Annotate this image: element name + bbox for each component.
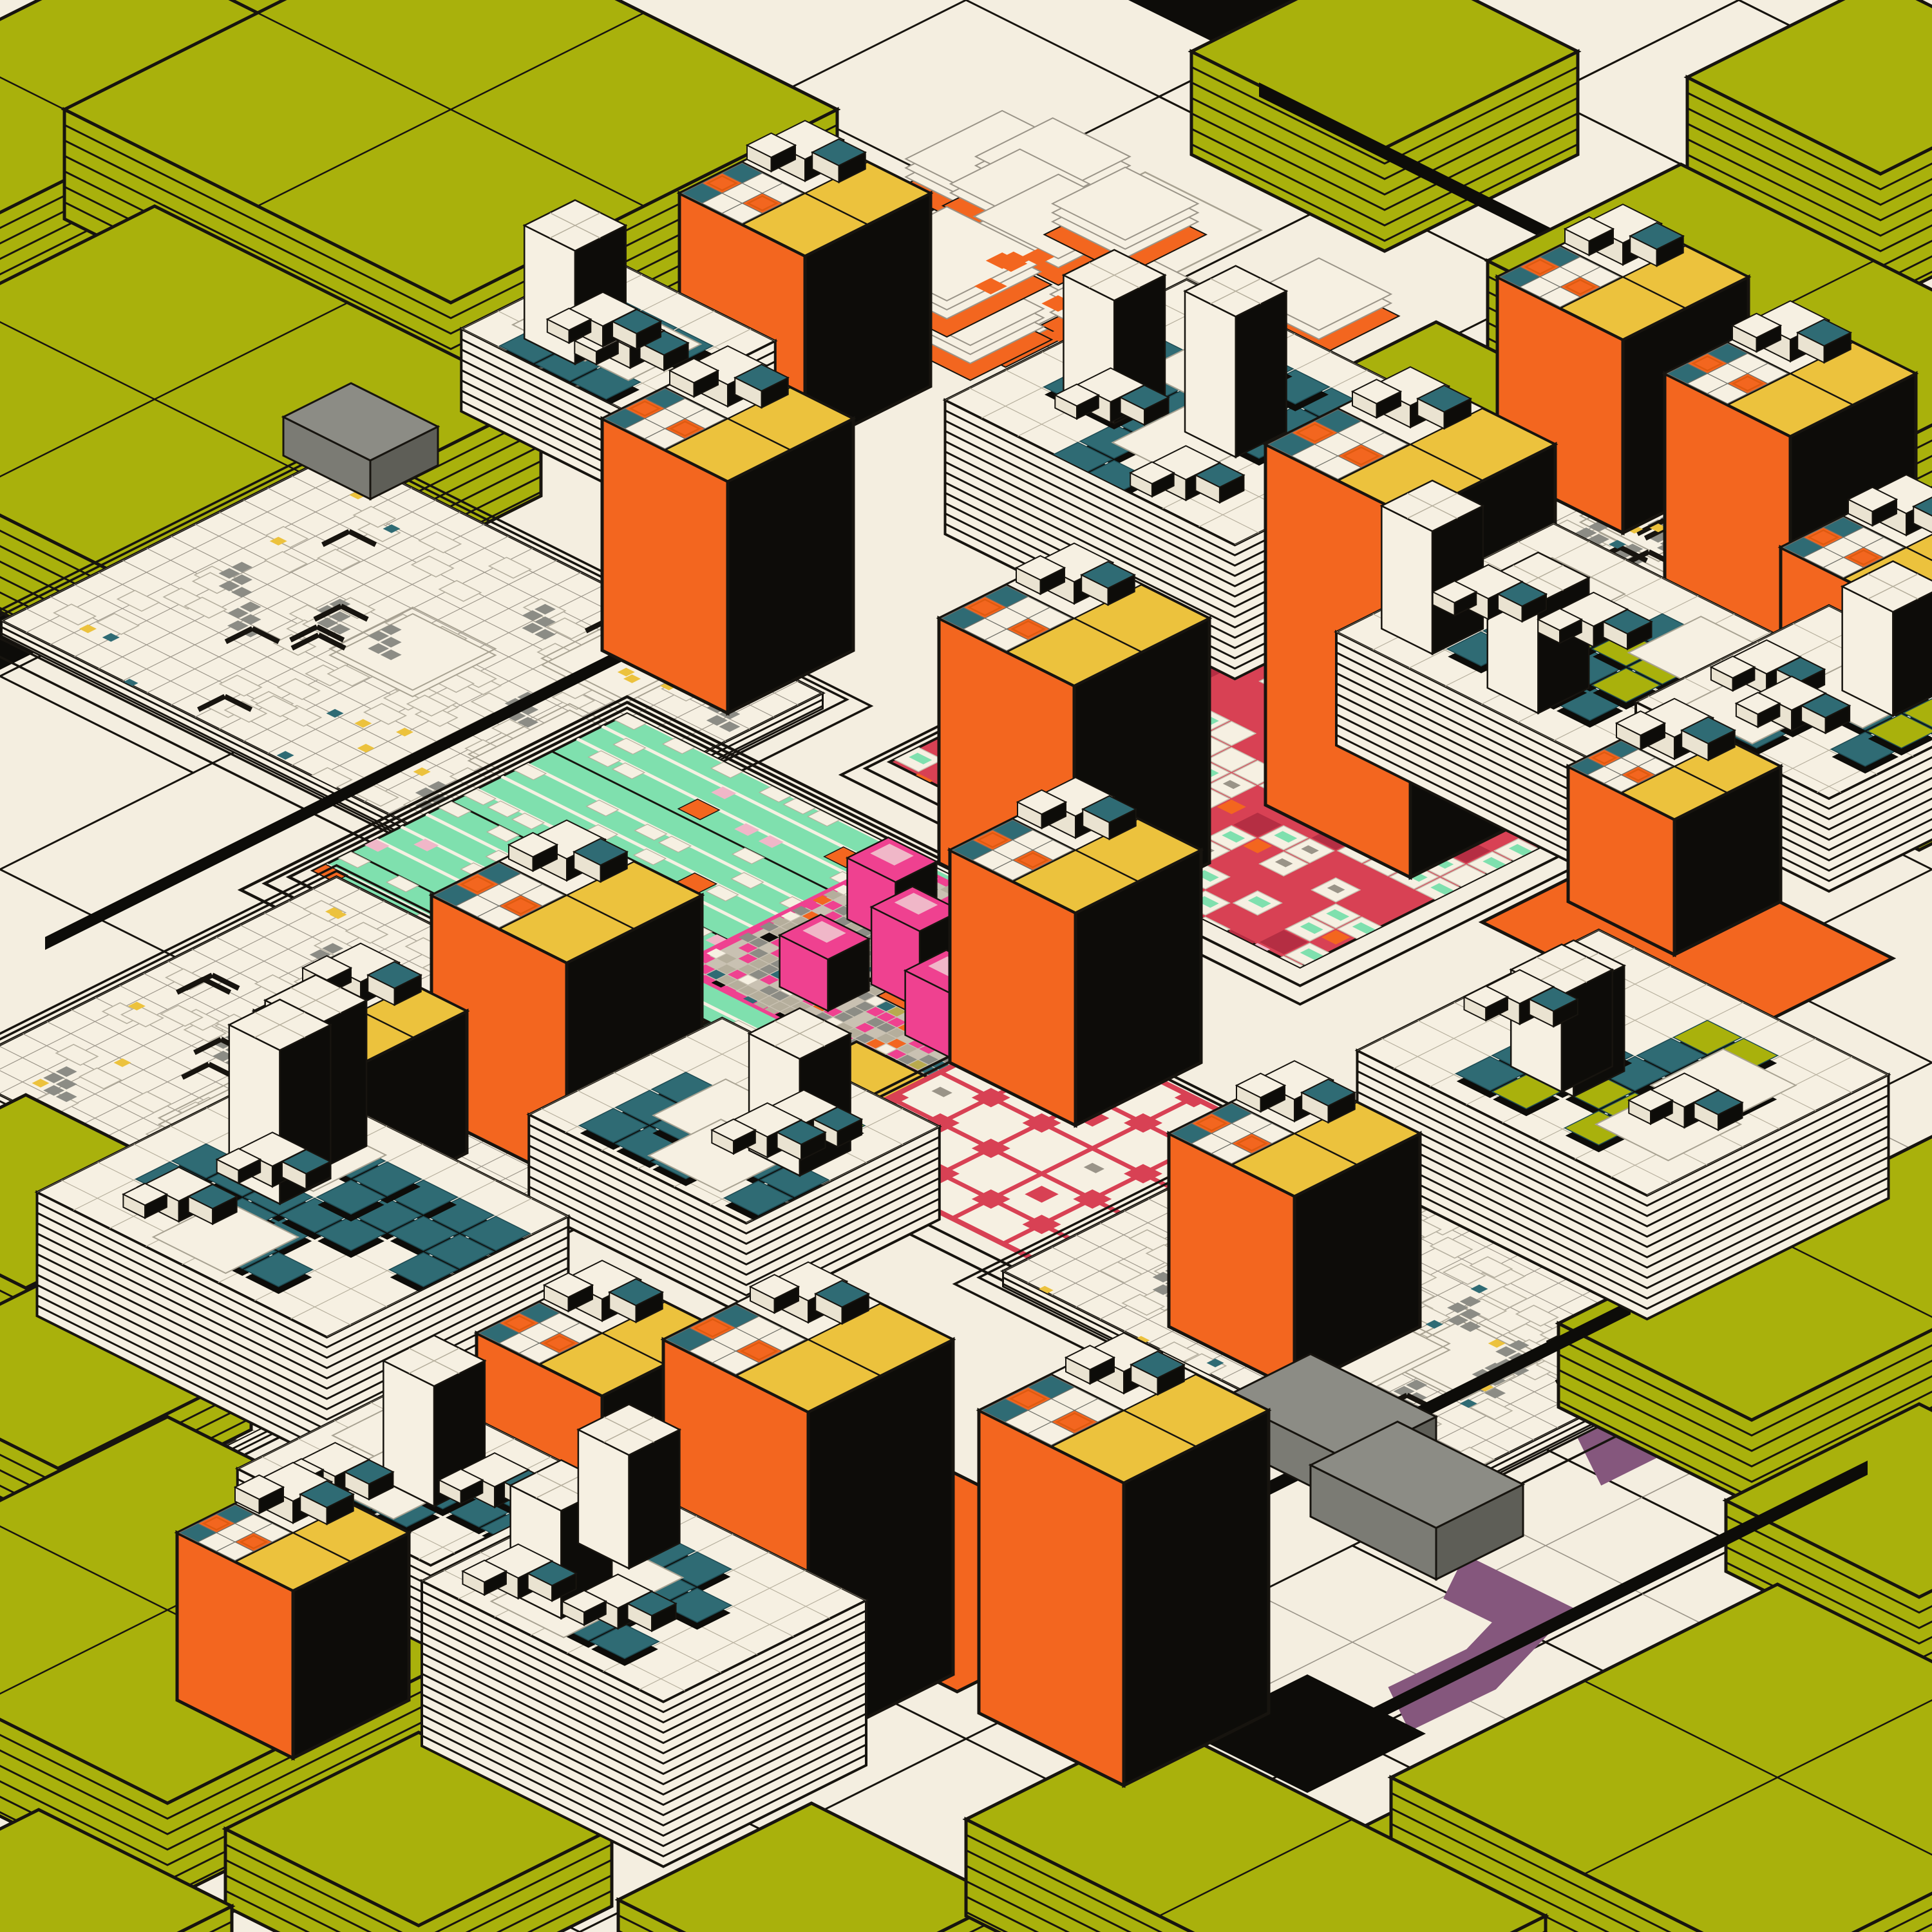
artwork-canvas — [0, 0, 1932, 1932]
orange-tower — [979, 1333, 1269, 1786]
orange-tower — [602, 346, 853, 713]
isometric-city-artwork — [0, 0, 1932, 1932]
